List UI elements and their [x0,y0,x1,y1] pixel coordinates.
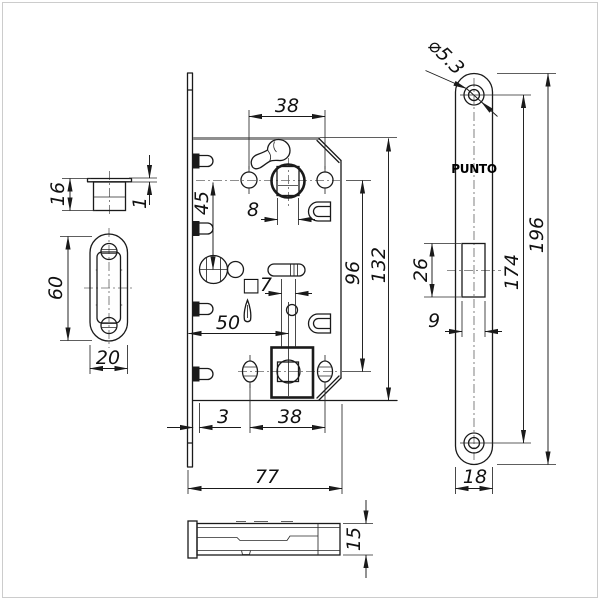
dim-label-wc-square: □7 [242,274,272,296]
dim-label-backset-bottom: 38 [278,406,302,428]
body-bottom-view: 15 [188,500,373,578]
faceplate-edge [188,73,193,467]
dim-label-face-width: 18 [463,466,487,488]
dim-cutout-width: 9 [428,301,502,337]
dim-striker-height: 16 [47,179,96,211]
wc-hub [272,302,314,398]
striker-flange [88,179,132,182]
dim-face-width: 18 [456,466,493,494]
dim-label-body-thickness: 15 [343,527,365,551]
dim-striker-flange: 1 [129,155,157,209]
dim-label-strike-width: 20 [96,347,120,369]
dim-hole-diameter: ⌀5.3 [423,34,497,116]
drawing-border [3,3,598,598]
cylinder-cam [200,256,228,284]
dim-label-screw-span-body: 96 [342,261,364,285]
dim-label-wc-backset: 50 [216,312,240,334]
drawing-canvas: 16 1 60 20 [0,0,600,600]
dim-wc-square: □7 [242,274,312,347]
dim-wc-backset: 50 [189,312,289,334]
dim-screw-span-body: 96 [342,181,371,372]
dim-body-height: 132 [368,139,390,401]
strike-plate-front-view: 60 20 [45,228,134,374]
mounting-lugs [193,154,213,382]
dim-handle-square: 8 [247,198,315,225]
dim-label-striker-flange: 1 [129,197,151,209]
dim-label-screw-span-face: 174 [501,254,523,290]
dim-strike-width: 20 [90,345,128,374]
brand-logo: PUNTO [451,162,497,176]
faceplate-edge-bottom-view [188,521,197,558]
clip-right-bottom [309,314,331,333]
technical-drawing: 16 1 60 20 [0,0,600,600]
dim-strike-height: 60 [45,237,92,341]
dim-label-body-depth: 77 [255,466,279,488]
spring-capsule [268,264,305,276]
dim-label-handle-square: 8 [247,199,259,221]
dim-label-strike-height: 60 [45,276,67,300]
faceplate-front-view: PUNTO ⌀5.3 26 9 174 196 [410,34,556,494]
lock-body-view: 38 8 45 96 132 □7 50 [167,73,397,494]
dim-label-cutout-width: 9 [428,310,440,332]
clip-right-top [309,202,331,221]
dim-front-offset: 3 [167,403,241,433]
dim-screw-span-face: 174 [460,95,531,443]
spindle-hub [272,165,305,198]
dim-label-body-height: 132 [368,247,390,283]
striker-side-view: 16 1 [47,155,157,217]
dim-body-thickness: 15 [343,500,373,578]
dim-label-cutout-height: 26 [410,258,432,282]
dim-label-hub-to-cylinder: 45 [191,191,213,215]
dim-label-backset-top: 38 [275,95,299,117]
dim-label-face-length: 196 [526,217,548,253]
dim-body-depth: 77 [188,404,342,494]
screw-hole-top-right [317,172,333,188]
screw-hole-top-left [241,172,257,188]
spring-blade [244,300,251,322]
dim-label-striker-height: 16 [47,182,69,206]
body-chamfer-top [317,139,341,163]
dim-label-front-offset: 3 [217,406,229,428]
